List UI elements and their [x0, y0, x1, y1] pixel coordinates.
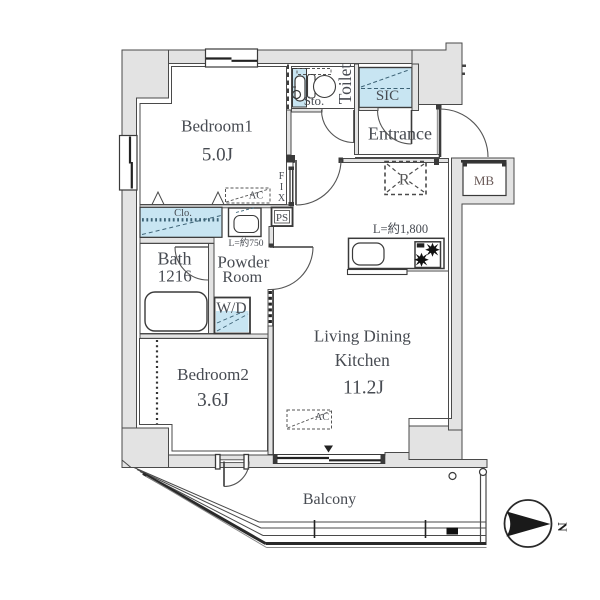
svg-text:11.2J: 11.2J: [343, 378, 384, 399]
svg-text:F: F: [279, 171, 285, 182]
svg-text:1216: 1216: [158, 267, 192, 286]
svg-text:W/D: W/D: [216, 300, 246, 317]
svg-text:Bedroom1: Bedroom1: [181, 117, 253, 136]
svg-text:SIC: SIC: [376, 88, 399, 104]
svg-text:3.6J: 3.6J: [197, 390, 229, 411]
svg-text:N: N: [555, 522, 570, 532]
svg-text:Balcony: Balcony: [303, 491, 356, 508]
svg-text:Living Dining: Living Dining: [314, 327, 411, 346]
svg-text:Toilet: Toilet: [335, 64, 355, 105]
svg-text:Room: Room: [222, 267, 262, 286]
svg-text:Entrance: Entrance: [368, 124, 432, 144]
svg-text:Bath: Bath: [158, 249, 192, 269]
svg-text:Bedroom2: Bedroom2: [177, 365, 249, 384]
svg-text:L=約750: L=約750: [229, 237, 264, 249]
svg-text:Kitchen: Kitchen: [335, 350, 390, 370]
svg-text:5.0J: 5.0J: [202, 145, 233, 166]
svg-text:MB: MB: [474, 173, 495, 188]
svg-text:Sto.: Sto.: [304, 93, 325, 108]
svg-text:AC: AC: [315, 412, 330, 423]
svg-text:AC: AC: [249, 191, 264, 202]
svg-text:L=約1,800: L=約1,800: [373, 221, 428, 236]
svg-text:R: R: [399, 172, 410, 189]
svg-text:I: I: [280, 182, 283, 193]
svg-text:X: X: [278, 193, 286, 204]
svg-text:PS: PS: [276, 212, 288, 224]
svg-text:Clo.: Clo.: [174, 208, 192, 219]
